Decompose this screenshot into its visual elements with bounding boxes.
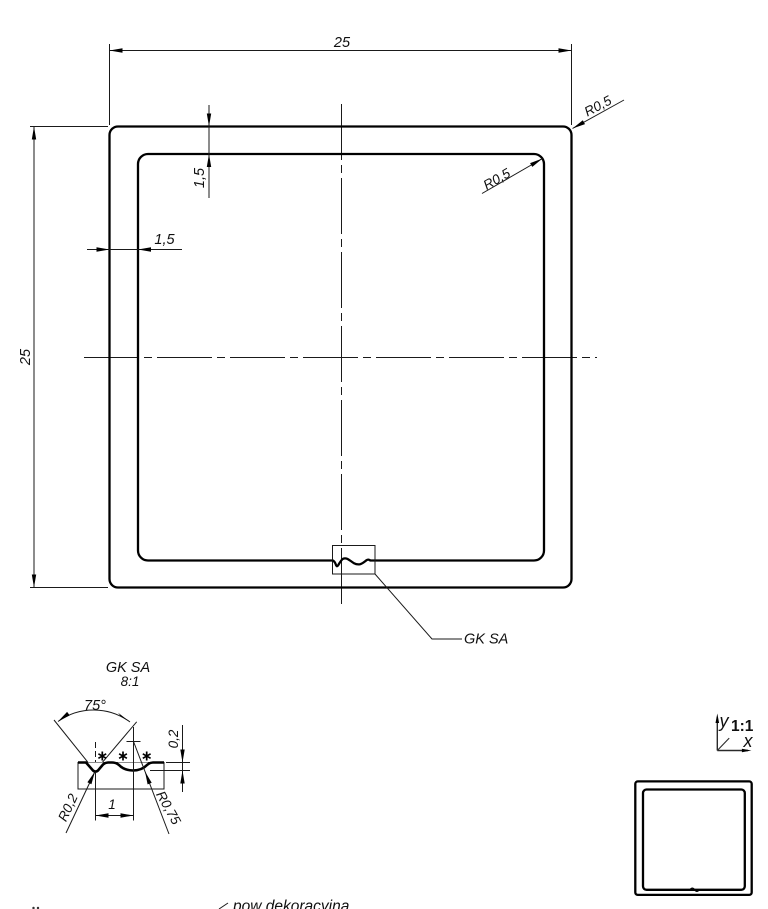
svg-text:1,5: 1,5 bbox=[192, 167, 208, 188]
svg-text:pow dekoracyjna: pow dekoracyjna bbox=[232, 898, 350, 909]
svg-text:R0,75: R0,75 bbox=[153, 788, 184, 827]
svg-text:1: 1 bbox=[108, 797, 116, 812]
svg-text:GK SA: GK SA bbox=[464, 632, 508, 648]
svg-text:y: y bbox=[718, 711, 730, 731]
svg-text:0,2: 0,2 bbox=[166, 729, 181, 748]
svg-text:75°: 75° bbox=[84, 698, 106, 714]
svg-text:R0,5: R0,5 bbox=[582, 92, 615, 119]
svg-text:1:1: 1:1 bbox=[731, 718, 754, 735]
svg-text:R0,2: R0,2 bbox=[55, 791, 81, 824]
svg-text:25: 25 bbox=[18, 348, 34, 366]
svg-text:1,5: 1,5 bbox=[154, 232, 175, 248]
svg-text:25: 25 bbox=[333, 35, 351, 51]
svg-text:R0,5: R0,5 bbox=[481, 165, 514, 192]
svg-text:8:1: 8:1 bbox=[121, 674, 140, 689]
